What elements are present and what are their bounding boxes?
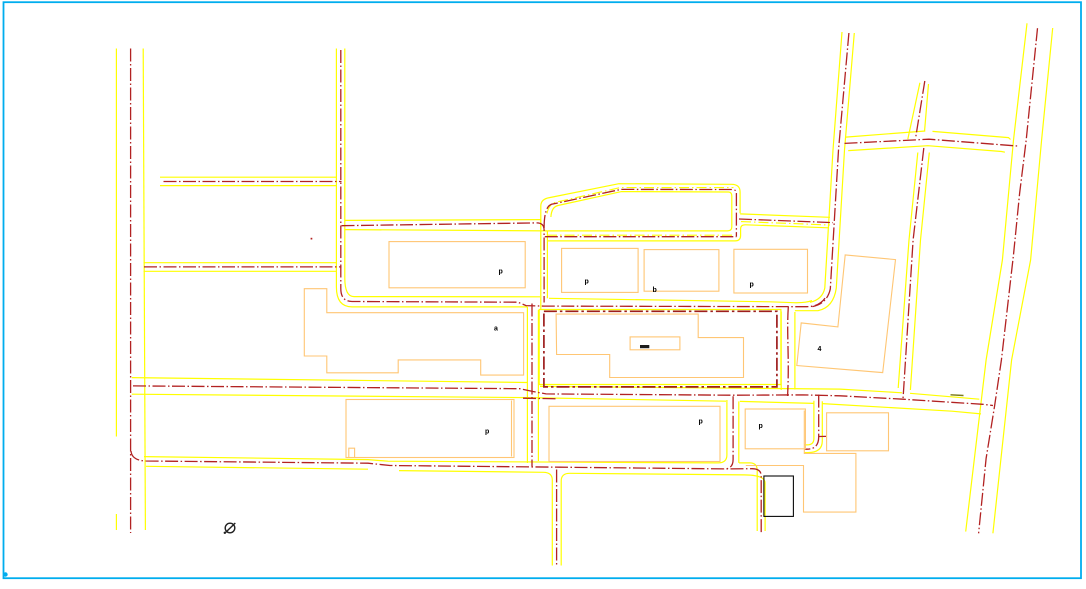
svg-text:a: a: [494, 326, 498, 333]
svg-text:p: p: [699, 419, 703, 426]
svg-text:p: p: [485, 428, 489, 435]
svg-text:p: p: [585, 278, 589, 285]
svg-text:b: b: [653, 287, 657, 294]
svg-text:p: p: [750, 281, 754, 288]
svg-text:4: 4: [818, 346, 822, 353]
svg-text:p: p: [759, 423, 763, 430]
svg-text:p: p: [499, 268, 503, 275]
